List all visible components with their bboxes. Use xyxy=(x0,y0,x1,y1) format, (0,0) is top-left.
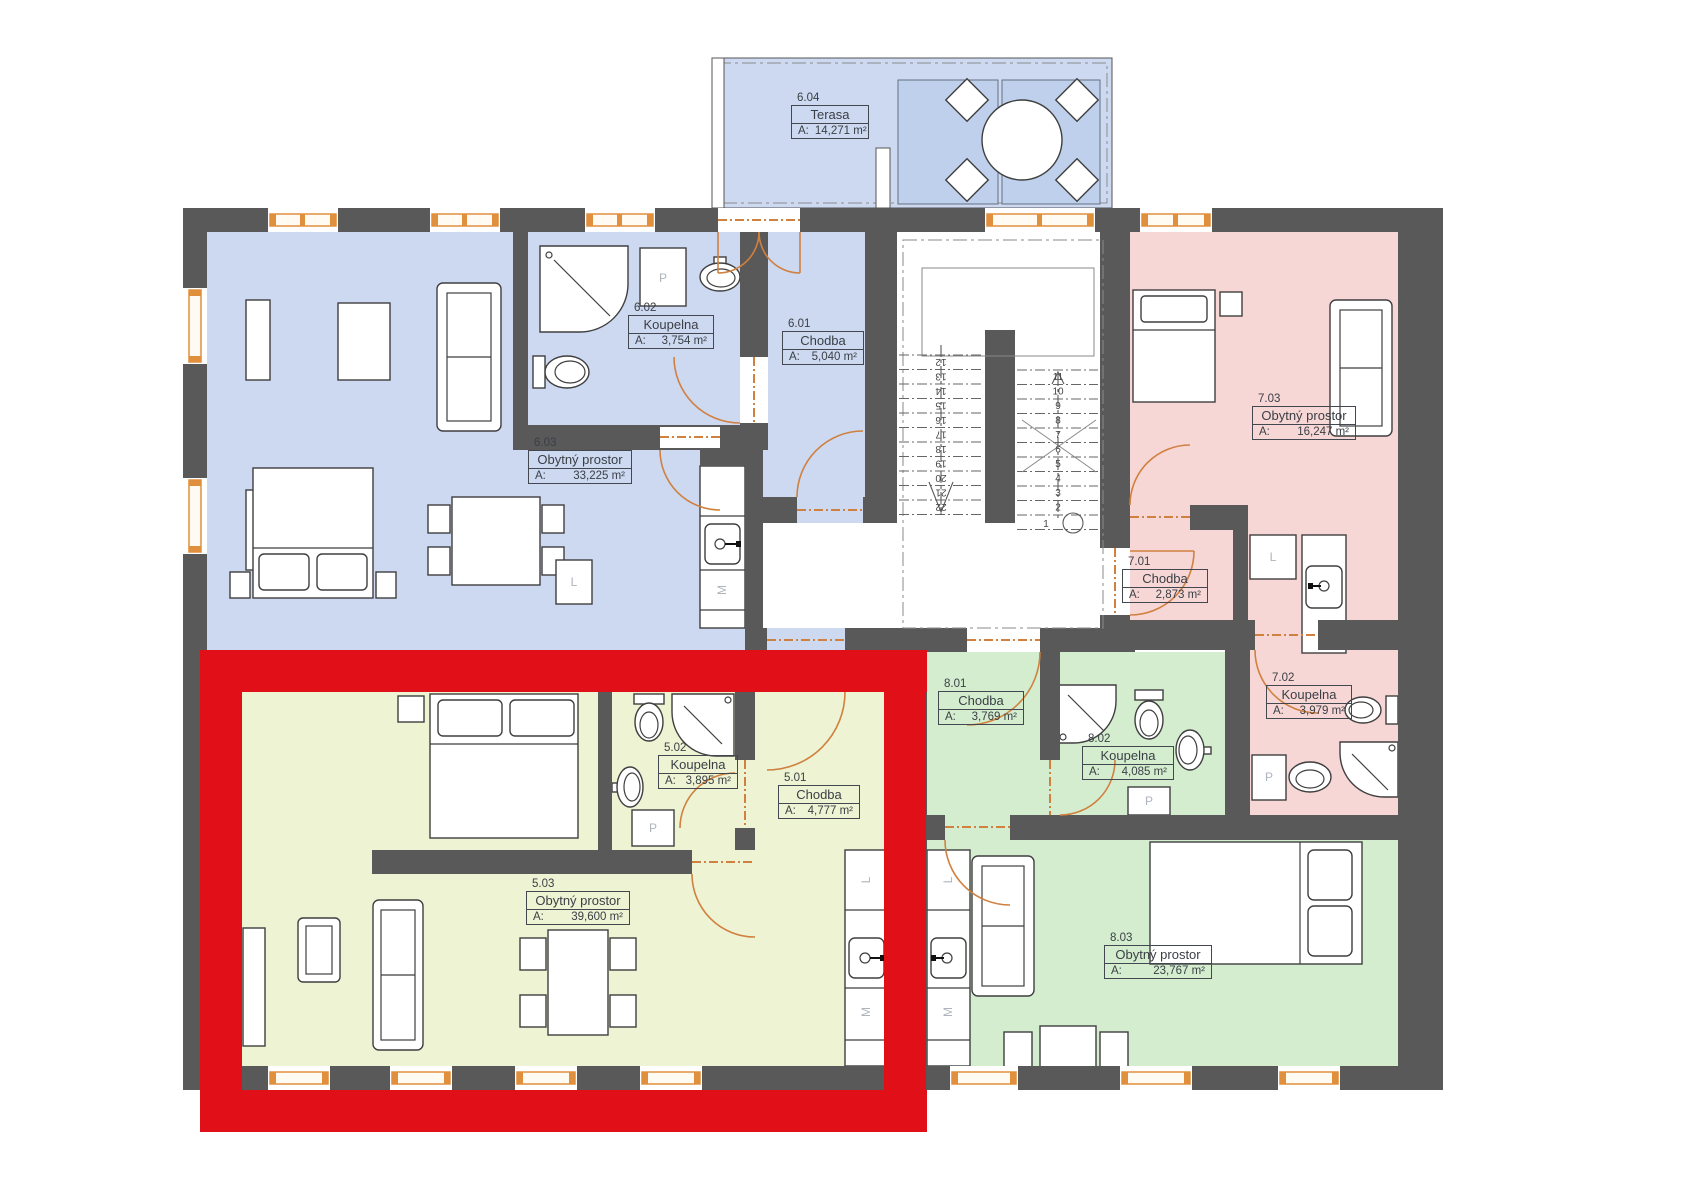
window xyxy=(430,208,500,232)
svg-text:4: 4 xyxy=(1055,474,1061,485)
window xyxy=(268,208,338,232)
window xyxy=(1140,208,1212,232)
terrace-side-wall xyxy=(712,58,724,208)
svg-text:14: 14 xyxy=(935,385,947,396)
svg-text:16: 16 xyxy=(935,414,947,425)
bed xyxy=(1150,842,1362,964)
dishwasher-label: M xyxy=(941,1007,955,1017)
svg-text:3: 3 xyxy=(1055,488,1061,499)
svg-text:9: 9 xyxy=(1055,401,1061,412)
svg-text:12: 12 xyxy=(935,356,947,367)
floor-plan-drawing: 1213141516171819202122 111098765432 1 P … xyxy=(0,0,1697,1200)
sofa xyxy=(972,856,1034,996)
cabinet xyxy=(243,928,265,1046)
kitchen-counter xyxy=(700,466,745,628)
sofa xyxy=(373,900,423,1050)
terrace-divider xyxy=(876,148,890,208)
toilet xyxy=(1345,696,1398,724)
stair-numbers-up: 1213141516171819202122 xyxy=(935,356,947,512)
window xyxy=(1120,1066,1192,1090)
sofa xyxy=(1330,300,1392,436)
svg-text:6: 6 xyxy=(1055,445,1061,456)
dishwasher-label: M xyxy=(859,1007,873,1017)
window xyxy=(950,1066,1018,1090)
fridge-label: L xyxy=(859,876,873,883)
svg-text:21: 21 xyxy=(935,487,947,498)
washer-label: P xyxy=(1145,794,1153,808)
terrace-door-opening xyxy=(718,208,800,232)
svg-text:2: 2 xyxy=(1055,503,1061,514)
cabinet xyxy=(246,300,270,380)
washer-label: P xyxy=(649,821,657,835)
svg-text:7: 7 xyxy=(1055,430,1061,441)
washer-label: P xyxy=(659,271,667,285)
window xyxy=(183,478,207,554)
window xyxy=(640,1066,702,1090)
svg-text:17: 17 xyxy=(935,429,947,440)
svg-text:15: 15 xyxy=(935,400,947,411)
window xyxy=(390,1066,452,1090)
bed xyxy=(230,468,396,598)
stair-step-1: 1 xyxy=(1043,519,1049,530)
dishwasher-label: M xyxy=(715,585,729,595)
floor-plan: 1213141516171819202122 111098765432 1 P … xyxy=(0,0,1697,1200)
svg-text:8: 8 xyxy=(1055,416,1061,427)
svg-text:13: 13 xyxy=(935,371,947,382)
armchair xyxy=(298,918,340,982)
fridge-label: L xyxy=(571,575,578,589)
terrace xyxy=(712,58,1112,208)
window xyxy=(515,1066,577,1090)
window xyxy=(268,1066,330,1090)
toilet xyxy=(533,356,589,388)
fridge-label: L xyxy=(1270,550,1277,564)
wardrobe xyxy=(338,303,390,380)
svg-text:10: 10 xyxy=(1052,387,1064,398)
svg-text:22: 22 xyxy=(935,501,947,512)
window xyxy=(1278,1066,1340,1090)
window xyxy=(585,208,655,232)
washer-label: P xyxy=(1265,770,1273,784)
svg-text:5: 5 xyxy=(1055,459,1061,470)
toilet xyxy=(634,694,664,741)
svg-text:11: 11 xyxy=(1053,372,1064,383)
svg-text:20: 20 xyxy=(935,472,947,483)
fridge-label: L xyxy=(941,876,955,883)
svg-text:19: 19 xyxy=(935,458,947,469)
toilet xyxy=(1135,690,1163,739)
window xyxy=(985,208,1095,232)
svg-text:18: 18 xyxy=(935,443,947,454)
sofa xyxy=(437,283,501,431)
sink xyxy=(1289,762,1331,792)
window xyxy=(183,288,207,364)
